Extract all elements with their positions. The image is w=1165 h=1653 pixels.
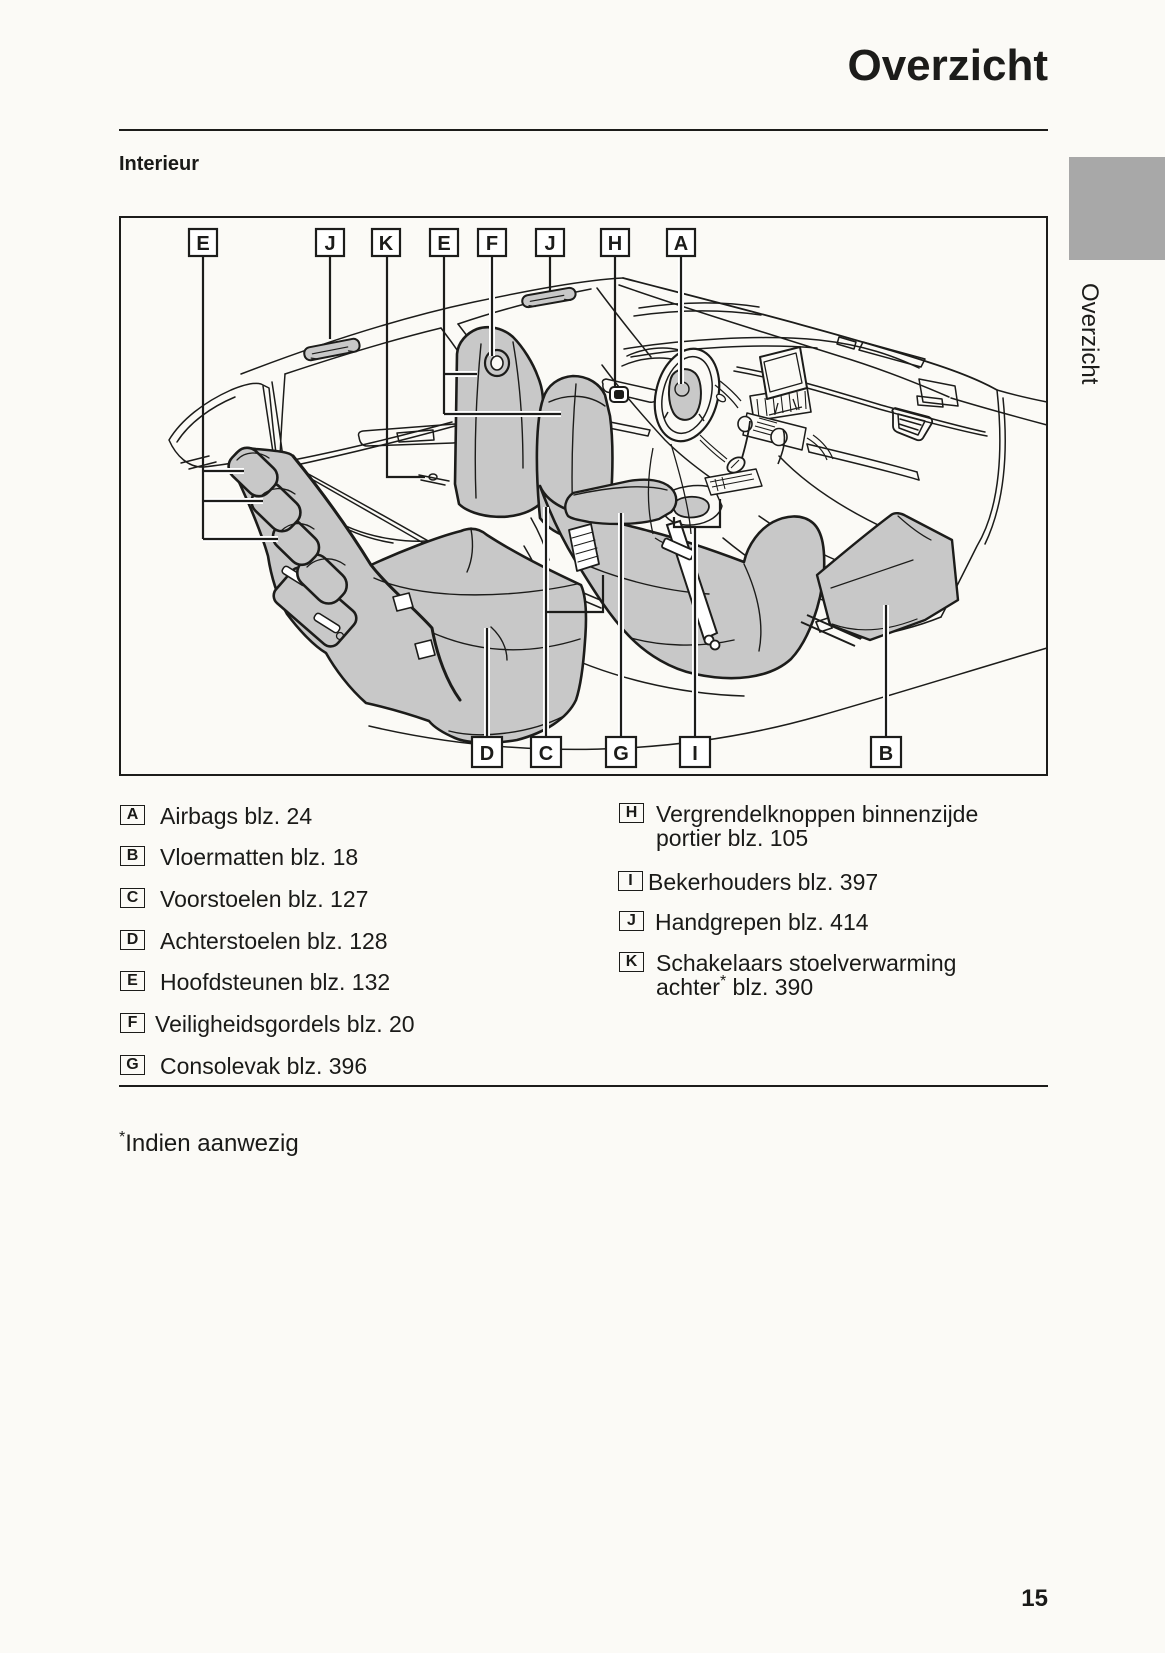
svg-text:C: C (539, 743, 553, 765)
svg-text:K: K (379, 233, 394, 255)
svg-text:E: E (196, 233, 209, 255)
svg-text:G: G (613, 743, 629, 765)
svg-text:B: B (879, 743, 893, 765)
svg-text:J: J (324, 233, 335, 255)
svg-text:H: H (608, 233, 622, 255)
svg-text:J: J (544, 233, 555, 255)
svg-text:D: D (480, 743, 494, 765)
svg-text:I: I (692, 743, 698, 765)
svg-text:E: E (437, 233, 450, 255)
svg-text:F: F (486, 233, 498, 255)
svg-text:A: A (674, 233, 688, 255)
